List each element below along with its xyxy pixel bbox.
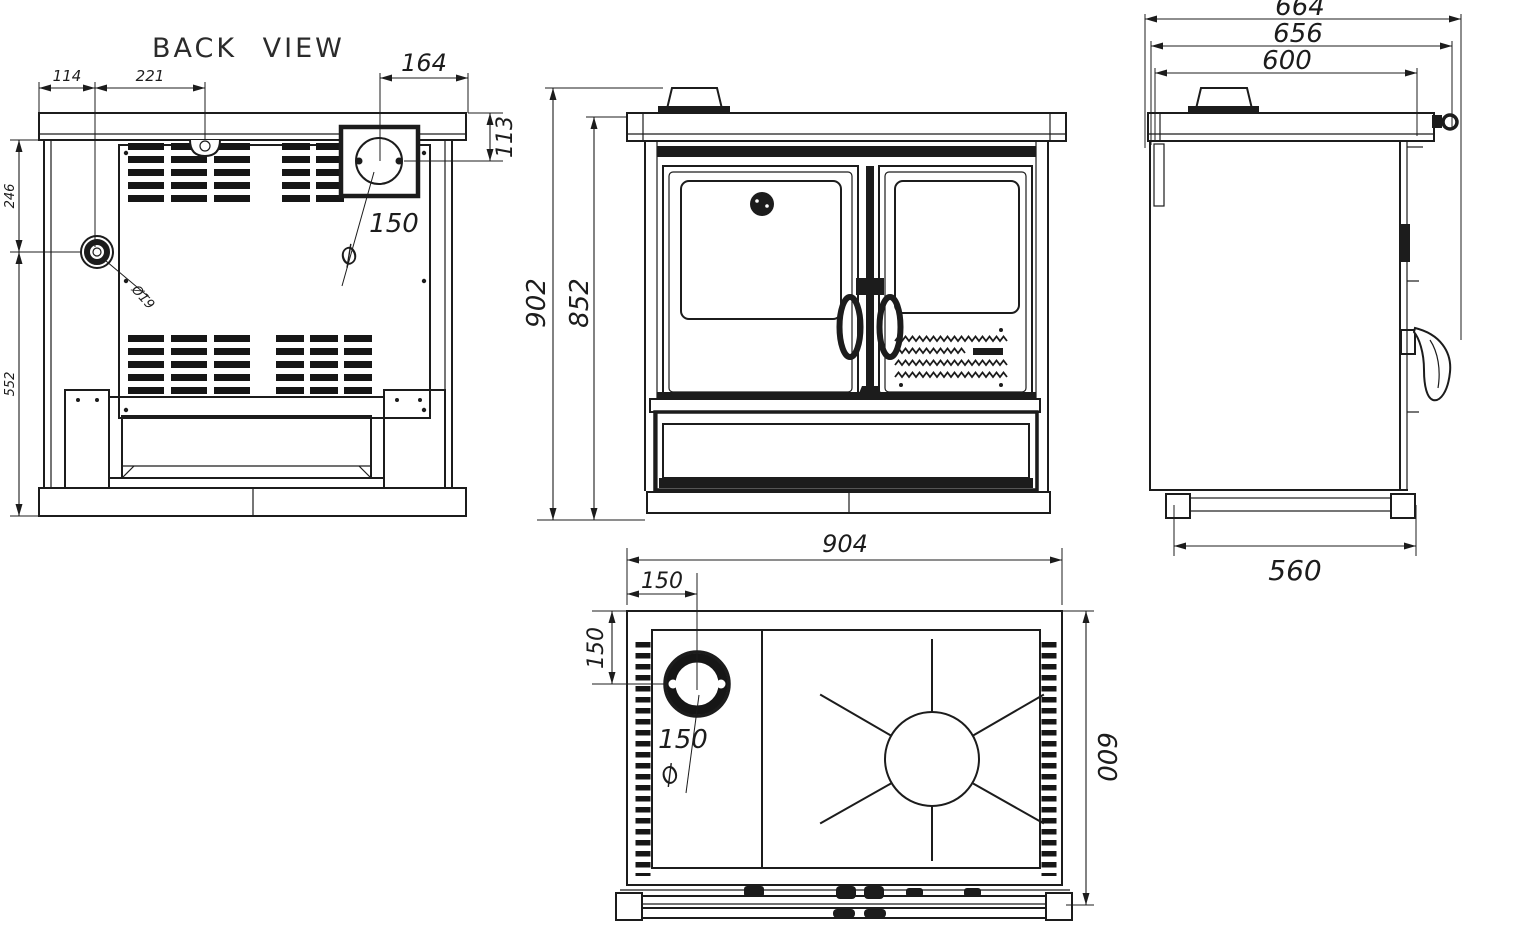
stove-technical-drawing: BACK VIEW (0, 0, 1536, 928)
back-view-dimensions: 114 221 164 113 246 552 150 Ø Ø19 (3, 49, 518, 516)
front-view-right-door (879, 166, 1032, 398)
hinge-block (1400, 224, 1410, 262)
diameter-symbol-top: Ø (655, 760, 686, 791)
towel-rail-end (1432, 115, 1457, 129)
firebox-door-window (895, 181, 1019, 313)
front-view-handles (840, 166, 901, 398)
back-view-title: BACK VIEW (152, 33, 345, 64)
dim-label-114: 114 (53, 67, 82, 85)
dim-label-600-side: 600 (1262, 46, 1312, 76)
dim-label-852: 852 (565, 278, 595, 328)
back-view: BACK VIEW (3, 33, 518, 516)
diameter-symbol: Ø (335, 241, 365, 272)
worktop (627, 113, 1066, 141)
dim-label-flue-150: 150 (369, 209, 419, 239)
dim-label-552: 552 (3, 372, 18, 397)
dim-label-600-top: 600 (1091, 732, 1121, 782)
side-view-dimensions: 664 656 600 560 (1145, 0, 1461, 587)
front-view-left-door (663, 166, 858, 398)
dim-label-221: 221 (136, 67, 165, 85)
top-view-hotplate (821, 640, 1043, 860)
side-view: 664 656 600 560 (1145, 0, 1461, 587)
dim-label-flue-y: 150 (584, 627, 609, 669)
dim-label-902: 902 (522, 278, 552, 328)
dim-label-246: 246 (3, 184, 18, 209)
top-view: 904 150 150 150 Ø 600 (584, 530, 1121, 920)
technical-drawing-page: BACK VIEW (0, 0, 1536, 928)
side-view-door-handle (1401, 328, 1450, 400)
dim-label-904: 904 (822, 530, 868, 558)
thermometer (750, 192, 774, 216)
top-view-front-rail (616, 886, 1072, 920)
dim-label-113: 113 (493, 116, 518, 158)
front-view: 902 852 (522, 88, 1066, 520)
right-door-handle (880, 297, 901, 357)
dim-label-656: 656 (1273, 19, 1323, 49)
dim-label-flue-x: 150 (641, 569, 683, 594)
dim-label-560: 560 (1268, 554, 1321, 587)
back-view-cable-clamp (190, 140, 220, 156)
front-view-grille (895, 328, 1007, 387)
side-view-structure (1148, 88, 1457, 518)
dim-label-164: 164 (401, 49, 447, 77)
front-view-dimensions: 902 852 (522, 88, 663, 520)
dim-label-flue-dia-top: 150 (658, 725, 708, 755)
back-view-vents (146, 143, 358, 394)
ash-drawer (122, 416, 371, 478)
handles-plan (833, 886, 886, 918)
dim-label-knob: Ø19 (127, 282, 157, 313)
worktop-side (1148, 113, 1434, 141)
